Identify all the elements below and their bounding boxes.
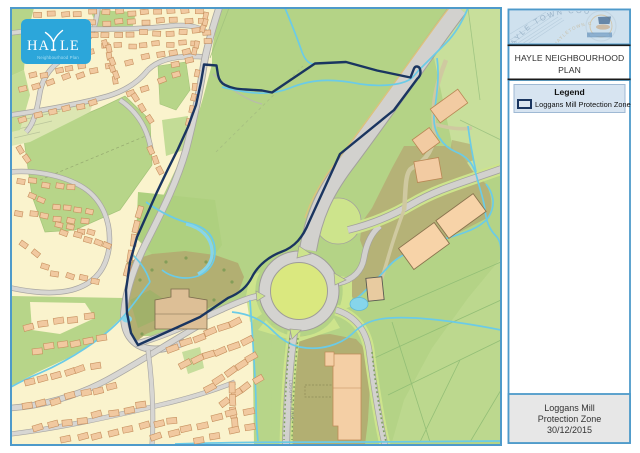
svg-text:LE: LE [60,38,80,54]
svg-text:30/12/2015: 30/12/2015 [547,425,592,435]
svg-text:Loggans Mill: Loggans Mill [544,403,595,413]
svg-text:HA: HA [27,38,50,54]
svg-text:HAYLE NEIGHBOURHOOD: HAYLE NEIGHBOURHOOD [515,53,625,63]
svg-text:PLAN: PLAN [558,65,581,75]
svg-text:Legend: Legend [554,87,585,97]
svg-text:Loggans Mill Protection Zone: Loggans Mill Protection Zone [535,100,631,109]
svg-text:Neighbourhood Plan: Neighbourhood Plan [37,55,79,60]
svg-text:Protection Zone: Protection Zone [538,414,602,424]
